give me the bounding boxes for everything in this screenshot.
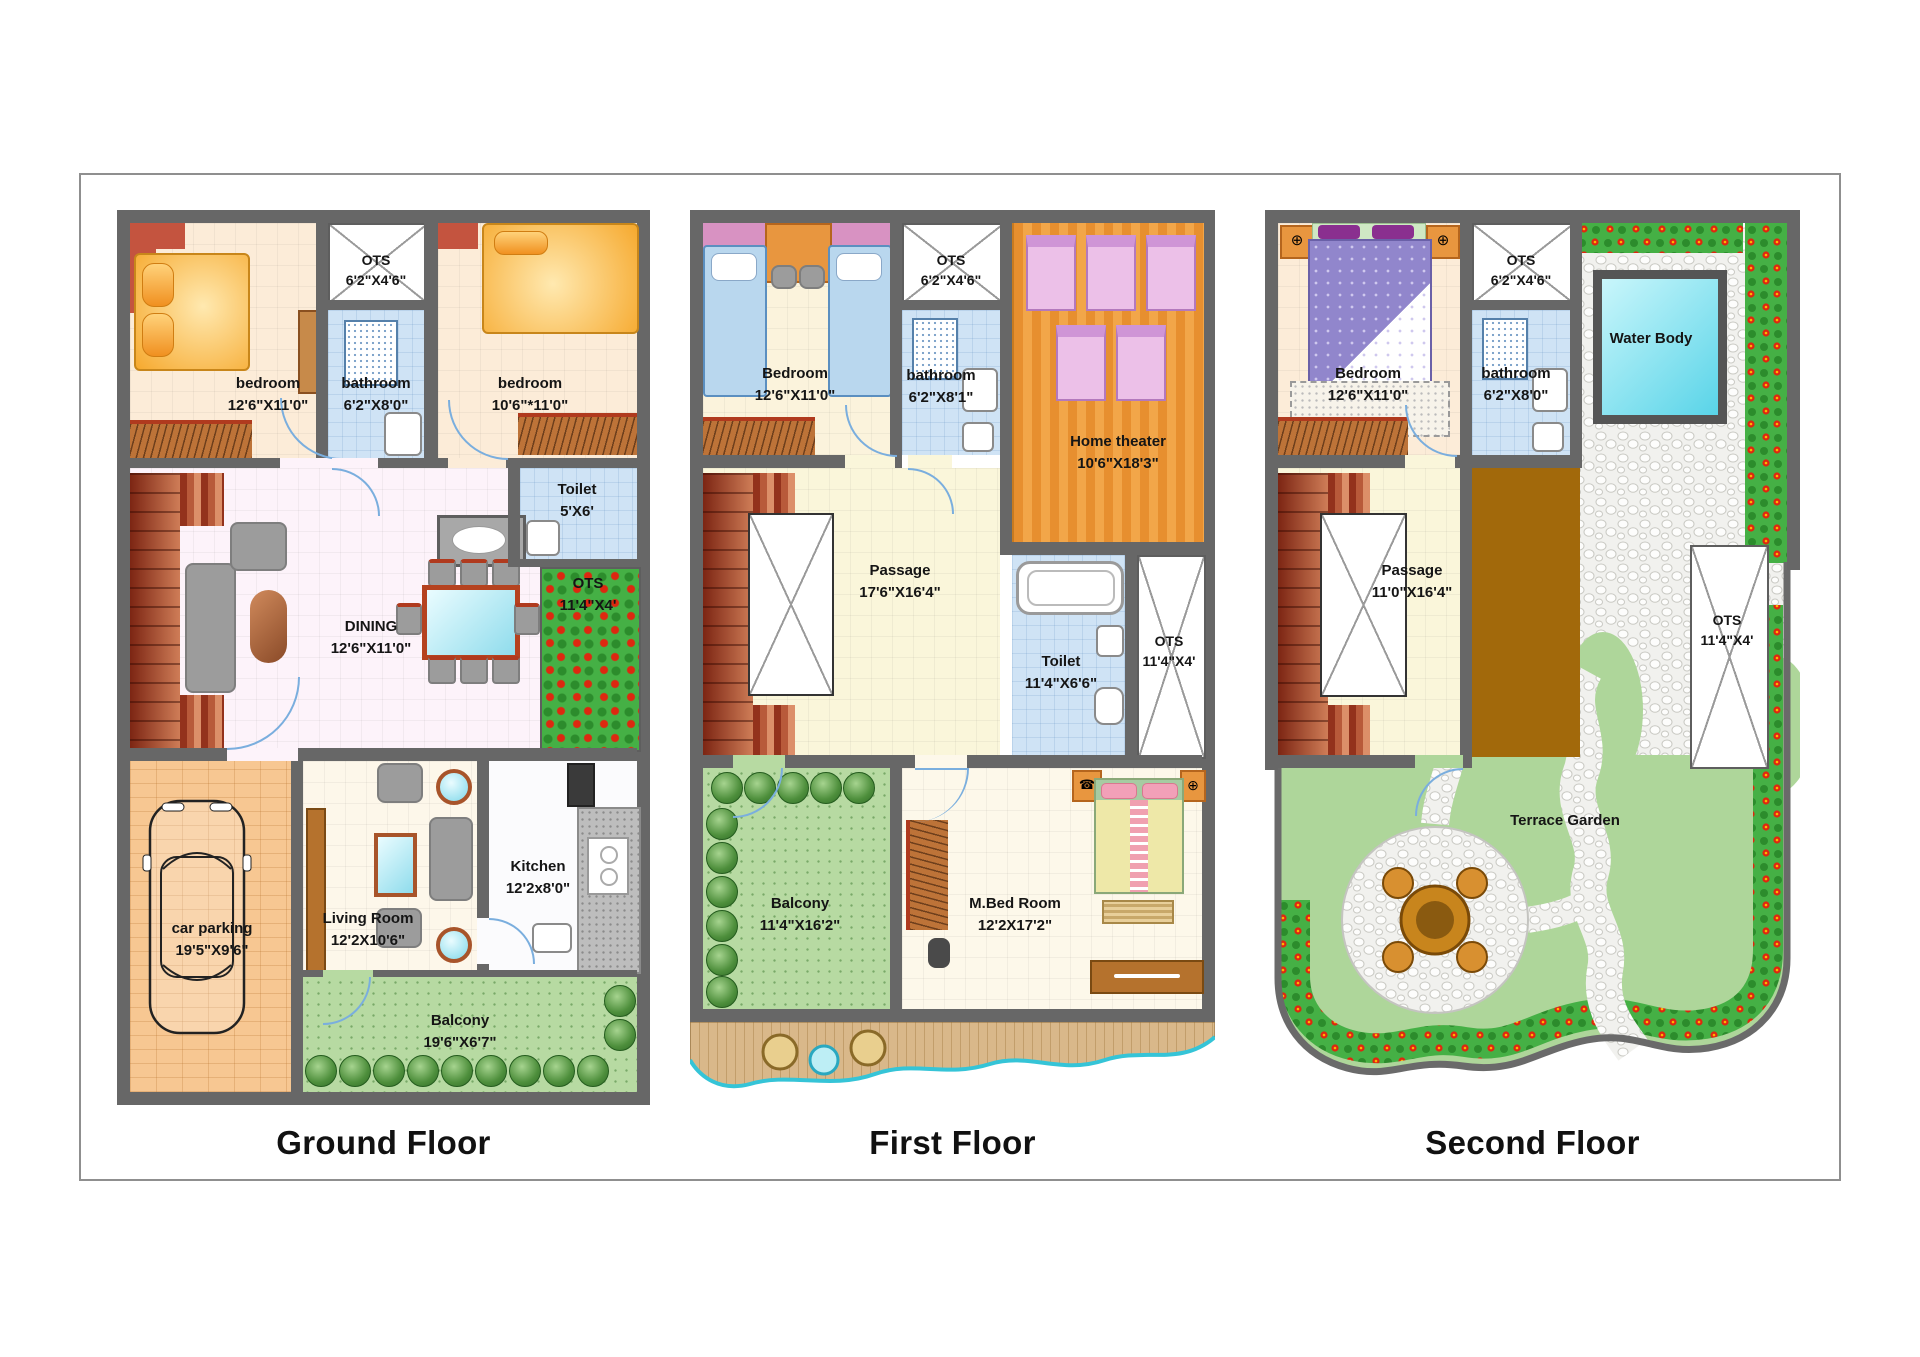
first-floor-plan: Bedroom 12'6"X11'0" OTS 6'2"X4'6" bathro… bbox=[690, 210, 1215, 1022]
door-gap bbox=[845, 455, 895, 468]
staircase-steps bbox=[180, 695, 224, 748]
room-name: Passage bbox=[1372, 560, 1453, 582]
door-gap bbox=[323, 970, 373, 977]
side-table bbox=[436, 927, 472, 963]
wall bbox=[1125, 555, 1137, 755]
theater-seat bbox=[1026, 235, 1076, 311]
room-dims: 17'6"X16'4" bbox=[859, 582, 940, 604]
shrub bbox=[810, 772, 842, 804]
room-label-bathroom: bathroom 6'2"X8'1" bbox=[906, 365, 975, 409]
room-dims: 11'4"X16'2" bbox=[760, 915, 841, 937]
room-label-balcony: Balcony 11'4"X16'2" bbox=[760, 893, 841, 937]
dining-chair bbox=[492, 656, 520, 684]
bathtub bbox=[1016, 561, 1124, 615]
burner bbox=[600, 868, 618, 886]
room-label-m-bed-room: M.Bed Room 12'2X17'2" bbox=[969, 893, 1061, 937]
door-gap bbox=[908, 455, 952, 468]
garden-table-center bbox=[1416, 901, 1454, 939]
room-label-ots-side: OTS 11'4"X4' bbox=[560, 573, 617, 617]
wall bbox=[520, 559, 637, 567]
sofa bbox=[185, 563, 236, 693]
second-floor-plan: ⊕ ⊕ Bedroom 12'6"X11'0" OTS 6'2"X4'6" ba… bbox=[1265, 210, 1800, 1115]
wardrobe bbox=[703, 417, 815, 459]
flower-bed-top bbox=[1578, 223, 1743, 253]
desk-chair bbox=[799, 265, 825, 289]
double-bed bbox=[482, 223, 639, 334]
room-dims: 12'2X17'2" bbox=[969, 915, 1061, 937]
shrub bbox=[706, 976, 738, 1008]
wall bbox=[1460, 468, 1472, 755]
room-label-dining: DINING 12'6"X11'0" bbox=[331, 616, 412, 660]
armchair bbox=[377, 763, 423, 803]
door-gap bbox=[280, 458, 340, 468]
room-name: DINING bbox=[331, 616, 412, 638]
room-name: Bedroom bbox=[1328, 363, 1409, 385]
room-label-bedroom2: bedroom 10'6"*11'0" bbox=[492, 373, 568, 417]
chair bbox=[928, 938, 950, 968]
room-label-ots-top: OTS 6'2"X4'6" bbox=[346, 250, 406, 290]
shrub bbox=[706, 910, 738, 942]
wardrobe bbox=[518, 413, 637, 455]
room-name: OTS bbox=[1491, 250, 1551, 270]
room-dims: 19'5"X9'6" bbox=[172, 940, 253, 962]
pillow bbox=[1101, 783, 1137, 799]
wall bbox=[1000, 223, 1012, 555]
room-label-toilet: Toilet 5'X6' bbox=[558, 479, 597, 523]
wall bbox=[1012, 542, 1202, 555]
pillow bbox=[142, 263, 174, 307]
room-name: Balcony bbox=[760, 893, 841, 915]
room-name: Water Body bbox=[1610, 328, 1693, 350]
room-label-car-parking: car parking 19'5"X9'6" bbox=[172, 918, 253, 962]
stair-void bbox=[1320, 513, 1407, 697]
burner bbox=[600, 846, 618, 864]
room-label-passage: Passage 17'6"X16'4" bbox=[859, 560, 940, 604]
wall bbox=[902, 300, 1000, 310]
bench bbox=[1102, 900, 1174, 924]
room-dims: 6'2"X8'1" bbox=[906, 387, 975, 409]
room-dims: 10'6"X18'3" bbox=[1070, 453, 1166, 475]
room-name: Living Room bbox=[323, 908, 414, 930]
pillow bbox=[836, 253, 882, 281]
dining-chair bbox=[428, 559, 456, 587]
pillow bbox=[1142, 783, 1178, 799]
pillow bbox=[711, 253, 757, 281]
shrub bbox=[543, 1055, 575, 1087]
theater-seat bbox=[1146, 235, 1196, 311]
door-gap bbox=[332, 458, 378, 468]
floor-plan-sheet: { "titles": { "ground": "Ground Floor", … bbox=[0, 0, 1920, 1357]
second-floor-title: Second Floor bbox=[1265, 1124, 1800, 1162]
room-label-bedroom: Bedroom 12'6"X11'0" bbox=[755, 363, 836, 407]
room-dims: 6'2"X8'0" bbox=[1481, 385, 1550, 407]
room-name: Home theater bbox=[1070, 431, 1166, 453]
room-name: car parking bbox=[172, 918, 253, 940]
home-theater bbox=[1012, 223, 1204, 542]
room-dims: 12'6"X11'0" bbox=[331, 638, 412, 660]
room-label-terrace-garden: Terrace Garden bbox=[1510, 810, 1620, 832]
room-name: Passage bbox=[859, 560, 940, 582]
wall bbox=[291, 761, 303, 1092]
double-bed bbox=[1094, 778, 1184, 894]
shrub bbox=[706, 944, 738, 976]
room-name: OTS bbox=[921, 250, 981, 270]
room-label-ots-side: OTS 11'4"X4' bbox=[1142, 631, 1195, 671]
wall bbox=[1472, 300, 1570, 310]
staircase-steps bbox=[1328, 705, 1370, 755]
double-bed bbox=[134, 253, 250, 371]
wood-deck bbox=[1472, 458, 1580, 757]
shrub bbox=[706, 876, 738, 908]
shrub bbox=[305, 1055, 337, 1087]
theater-seat bbox=[1086, 235, 1136, 311]
wardrobe bbox=[906, 820, 948, 930]
blanket-runner bbox=[1130, 800, 1148, 892]
bathtub-inner bbox=[1027, 570, 1115, 606]
shrub bbox=[475, 1055, 507, 1087]
dining-chair bbox=[460, 656, 488, 684]
room-name: Terrace Garden bbox=[1510, 810, 1620, 832]
sink bbox=[384, 412, 422, 456]
door-gap bbox=[448, 458, 506, 468]
pillow bbox=[142, 313, 174, 357]
garden-chair bbox=[1383, 868, 1413, 898]
dining-chair bbox=[460, 559, 488, 587]
deck-table bbox=[810, 1046, 838, 1074]
room-label-kitchen: Kitchen 12'2x8'0" bbox=[506, 856, 570, 900]
room-name: Balcony bbox=[423, 1010, 496, 1032]
wardrobe bbox=[1278, 417, 1408, 459]
door-gap bbox=[915, 755, 967, 768]
ots-shaft-side bbox=[1690, 545, 1769, 769]
kitchen-sink bbox=[532, 923, 572, 953]
wall bbox=[1460, 223, 1472, 468]
toilet-seat bbox=[1532, 422, 1564, 452]
wall-accent bbox=[130, 223, 185, 249]
balcony bbox=[703, 768, 890, 1009]
room-dims: 6'2"X4'6" bbox=[1491, 270, 1551, 290]
wall bbox=[424, 223, 438, 468]
door-gap bbox=[477, 918, 489, 964]
wall bbox=[508, 468, 520, 567]
room-dims: 11'4"X4' bbox=[560, 595, 617, 617]
wall bbox=[130, 458, 637, 468]
stair-void bbox=[748, 513, 834, 696]
side-table bbox=[436, 769, 472, 805]
door-gap bbox=[733, 755, 785, 768]
shrub bbox=[407, 1055, 439, 1087]
rug bbox=[374, 833, 417, 897]
room-label-bathroom: bathroom 6'2"X8'0" bbox=[1481, 363, 1550, 407]
room-dims: 12'6"X11'0" bbox=[228, 395, 309, 417]
room-name: bathroom bbox=[1481, 363, 1550, 385]
door-gap bbox=[1415, 755, 1463, 768]
ground-floor-title: Ground Floor bbox=[117, 1124, 650, 1162]
staircase bbox=[130, 473, 180, 748]
room-name: Bedroom bbox=[755, 363, 836, 385]
room-dims: 12'2x8'0" bbox=[506, 878, 570, 900]
room-name: bathroom bbox=[906, 365, 975, 387]
sofa bbox=[429, 817, 473, 901]
pillow bbox=[494, 231, 548, 255]
room-dims: 6'2"X4'6" bbox=[921, 270, 981, 290]
room-label-toilet: Toilet 11'4"X6'6" bbox=[1025, 651, 1097, 695]
room-name: OTS bbox=[1700, 610, 1753, 630]
room-name: OTS bbox=[560, 573, 617, 595]
shrub bbox=[843, 772, 875, 804]
shrub bbox=[604, 985, 636, 1017]
wall bbox=[890, 768, 902, 1009]
shrub bbox=[441, 1055, 473, 1087]
garden-chair bbox=[1383, 942, 1413, 972]
shrub bbox=[509, 1055, 541, 1087]
room-label-bedroom1: bedroom 12'6"X11'0" bbox=[228, 373, 309, 417]
wall bbox=[1265, 210, 1800, 223]
room-label-balcony: Balcony 19'6"X6'7" bbox=[423, 1010, 496, 1054]
theater-seat bbox=[1116, 325, 1166, 401]
stove bbox=[587, 837, 629, 895]
fridge bbox=[567, 763, 595, 807]
room-dims: 19'6"X6'7" bbox=[423, 1032, 496, 1054]
room-name: M.Bed Room bbox=[969, 893, 1061, 915]
room-dims: 12'2X10'6" bbox=[323, 930, 414, 952]
room-name: Toilet bbox=[558, 479, 597, 501]
room-name: bathroom bbox=[341, 373, 410, 395]
room-dims: 11'4"X4' bbox=[1142, 651, 1195, 671]
room-dims: 11'4"X4' bbox=[1700, 630, 1753, 650]
shrub bbox=[604, 1019, 636, 1051]
shrub bbox=[373, 1055, 405, 1087]
ground-floor-plan: bedroom 12'6"X11'0" OTS 6'2"X4'6" bathro… bbox=[117, 210, 650, 1105]
room-name: OTS bbox=[346, 250, 406, 270]
dining-table bbox=[422, 585, 520, 660]
room-dims: 5'X6' bbox=[558, 501, 597, 523]
toilet-seat bbox=[1094, 687, 1124, 725]
room-dims: 11'0"X16'4" bbox=[1372, 582, 1453, 604]
pillow bbox=[1372, 225, 1414, 239]
room-dims: 11'4"X6'6" bbox=[1025, 673, 1097, 695]
coffee-table bbox=[250, 590, 287, 663]
wall bbox=[1472, 455, 1582, 468]
single-bed bbox=[828, 245, 892, 397]
wall bbox=[130, 748, 637, 761]
room-dims: 10'6"*11'0" bbox=[492, 395, 568, 417]
shrub bbox=[339, 1055, 371, 1087]
garden-chair bbox=[1457, 942, 1487, 972]
first-floor-deck bbox=[690, 1022, 1215, 1108]
shrub bbox=[706, 842, 738, 874]
room-dims: 6'2"X4'6" bbox=[346, 270, 406, 290]
wall-accent bbox=[438, 223, 478, 249]
room-label-bedroom: Bedroom 12'6"X11'0" bbox=[1328, 363, 1409, 407]
wall bbox=[1265, 210, 1278, 770]
sink bbox=[526, 520, 560, 556]
room-label-water-body: Water Body bbox=[1610, 328, 1693, 350]
toilet-seat bbox=[962, 422, 994, 452]
dining-chair bbox=[428, 656, 456, 684]
room-label-passage: Passage 11'0"X16'4" bbox=[1372, 560, 1453, 604]
dining-chair bbox=[514, 603, 540, 635]
room-dims: 12'6"X11'0" bbox=[755, 385, 836, 407]
room-label-ots-side: OTS 11'4"X4' bbox=[1700, 610, 1753, 650]
sink bbox=[1096, 625, 1124, 657]
basin bbox=[452, 526, 506, 554]
pillow bbox=[1318, 225, 1360, 239]
shrub bbox=[577, 1055, 609, 1087]
kitchen-counter bbox=[577, 807, 641, 974]
room-label-home-theater: Home theater 10'6"X18'3" bbox=[1070, 431, 1166, 475]
room-label-living-room: Living Room 12'2X10'6" bbox=[323, 908, 414, 952]
room-label-bathroom: bathroom 6'2"X8'0" bbox=[341, 373, 410, 417]
room-name: Kitchen bbox=[506, 856, 570, 878]
desk-chair bbox=[771, 265, 797, 289]
wall bbox=[328, 300, 424, 310]
staircase-steps bbox=[753, 705, 795, 755]
room-dims: 12'6"X11'0" bbox=[1328, 385, 1409, 407]
garden-chair bbox=[1457, 868, 1487, 898]
theater-seat bbox=[1056, 325, 1106, 401]
door-gap bbox=[1405, 455, 1455, 468]
wardrobe bbox=[130, 420, 252, 462]
armchair bbox=[230, 522, 287, 571]
wall bbox=[1787, 210, 1800, 570]
room-dims: 6'2"X8'0" bbox=[341, 395, 410, 417]
staircase-steps bbox=[180, 473, 224, 526]
dresser bbox=[1090, 960, 1204, 994]
wall bbox=[1570, 223, 1582, 468]
staircase bbox=[703, 473, 753, 755]
first-floor-title: First Floor bbox=[690, 1124, 1215, 1162]
room-name: bedroom bbox=[492, 373, 568, 395]
room-name: OTS bbox=[1142, 631, 1195, 651]
room-label-ots-top: OTS 6'2"X4'6" bbox=[921, 250, 981, 290]
entrance-gap bbox=[227, 748, 298, 761]
room-label-ots-top: OTS 6'2"X4'6" bbox=[1491, 250, 1551, 290]
flower-bed-right bbox=[1745, 223, 1787, 563]
room-name: Toilet bbox=[1025, 651, 1097, 673]
room-name: bedroom bbox=[228, 373, 309, 395]
handle bbox=[1114, 974, 1180, 978]
